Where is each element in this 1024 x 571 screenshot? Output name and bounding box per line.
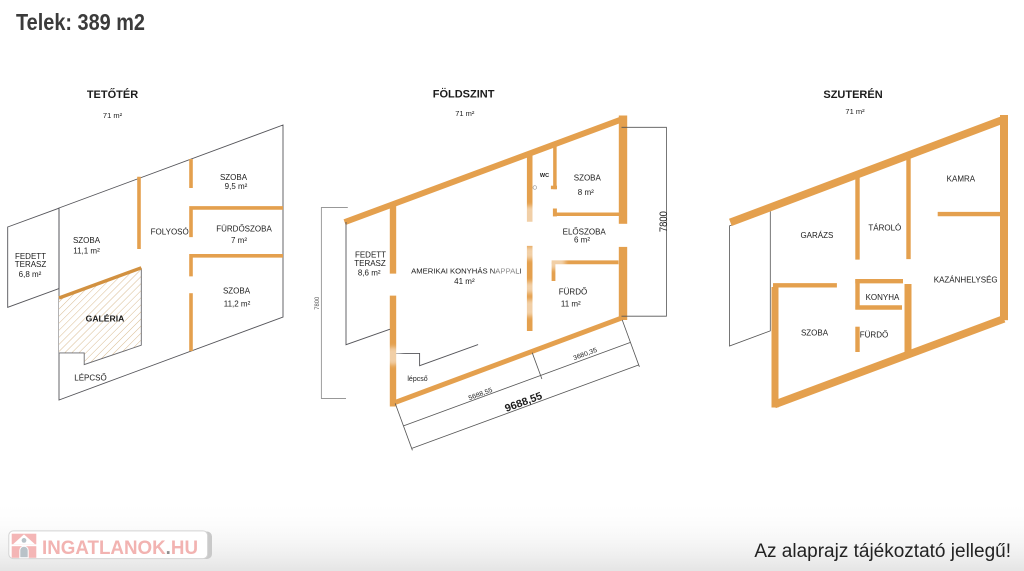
- svg-text:7 m²: 7 m²: [231, 236, 247, 245]
- svg-text:11,2 m²: 11,2 m²: [224, 300, 251, 309]
- svg-text:SZOBA: SZOBA: [220, 173, 248, 182]
- svg-text:GALÉRIA: GALÉRIA: [86, 314, 125, 324]
- svg-text:FÖLDSZINT: FÖLDSZINT: [433, 88, 495, 101]
- svg-text:7800: 7800: [315, 296, 321, 310]
- svg-text:SZUTERÉN: SZUTERÉN: [823, 88, 882, 101]
- svg-text:8 m²: 8 m²: [578, 188, 594, 197]
- svg-text:TÁROLÓ: TÁROLÓ: [868, 223, 901, 232]
- svg-text:11 m²: 11 m²: [561, 300, 581, 309]
- svg-text:INGATLANOK.HU: INGATLANOK.HU: [42, 538, 198, 559]
- svg-text:71 m²: 71 m²: [103, 111, 123, 120]
- svg-text:TERASZ: TERASZ: [15, 260, 47, 269]
- svg-text:Az alaprajz tájékoztató jelleg: Az alaprajz tájékoztató jellegű!: [754, 541, 1011, 562]
- svg-text:6,8 m²: 6,8 m²: [19, 270, 42, 279]
- svg-text:KAMRA: KAMRA: [947, 174, 976, 183]
- svg-text:KONYHA: KONYHA: [866, 293, 900, 302]
- svg-text:FÜRDŐ: FÜRDŐ: [860, 331, 888, 340]
- svg-text:SZOBA: SZOBA: [801, 329, 829, 338]
- svg-text:lépcső: lépcső: [407, 376, 427, 383]
- svg-text:SZOBA: SZOBA: [223, 287, 251, 296]
- svg-text:TETŐTÉR: TETŐTÉR: [87, 88, 138, 101]
- svg-text:71 m²: 71 m²: [455, 109, 475, 118]
- svg-text:7800: 7800: [658, 211, 670, 232]
- svg-text:6 m²: 6 m²: [574, 235, 590, 244]
- svg-text:Telek: 389 m2: Telek: 389 m2: [16, 9, 145, 35]
- svg-text:SZOBA: SZOBA: [73, 236, 101, 245]
- svg-text:9,5 m²: 9,5 m²: [225, 182, 248, 191]
- svg-text:WC: WC: [540, 173, 549, 179]
- svg-text:71 m²: 71 m²: [845, 107, 865, 116]
- svg-text:FOLYOSÓ: FOLYOSÓ: [151, 227, 189, 236]
- svg-text:11,1 m²: 11,1 m²: [73, 247, 100, 256]
- svg-text:LÉPCSŐ: LÉPCSŐ: [74, 374, 106, 383]
- svg-text:TERASZ: TERASZ: [354, 259, 386, 268]
- svg-text:GARÁZS: GARÁZS: [800, 231, 833, 240]
- svg-text:FÜRDŐ: FÜRDŐ: [559, 287, 587, 296]
- svg-text:8,6 m²: 8,6 m²: [358, 269, 381, 278]
- svg-text:FÜRDŐSZOBA: FÜRDŐSZOBA: [216, 225, 272, 234]
- svg-text:SZOBA: SZOBA: [574, 173, 602, 182]
- svg-text:KAZÁNHELYSÉG: KAZÁNHELYSÉG: [934, 275, 998, 284]
- svg-text:41 m²: 41 m²: [454, 277, 475, 286]
